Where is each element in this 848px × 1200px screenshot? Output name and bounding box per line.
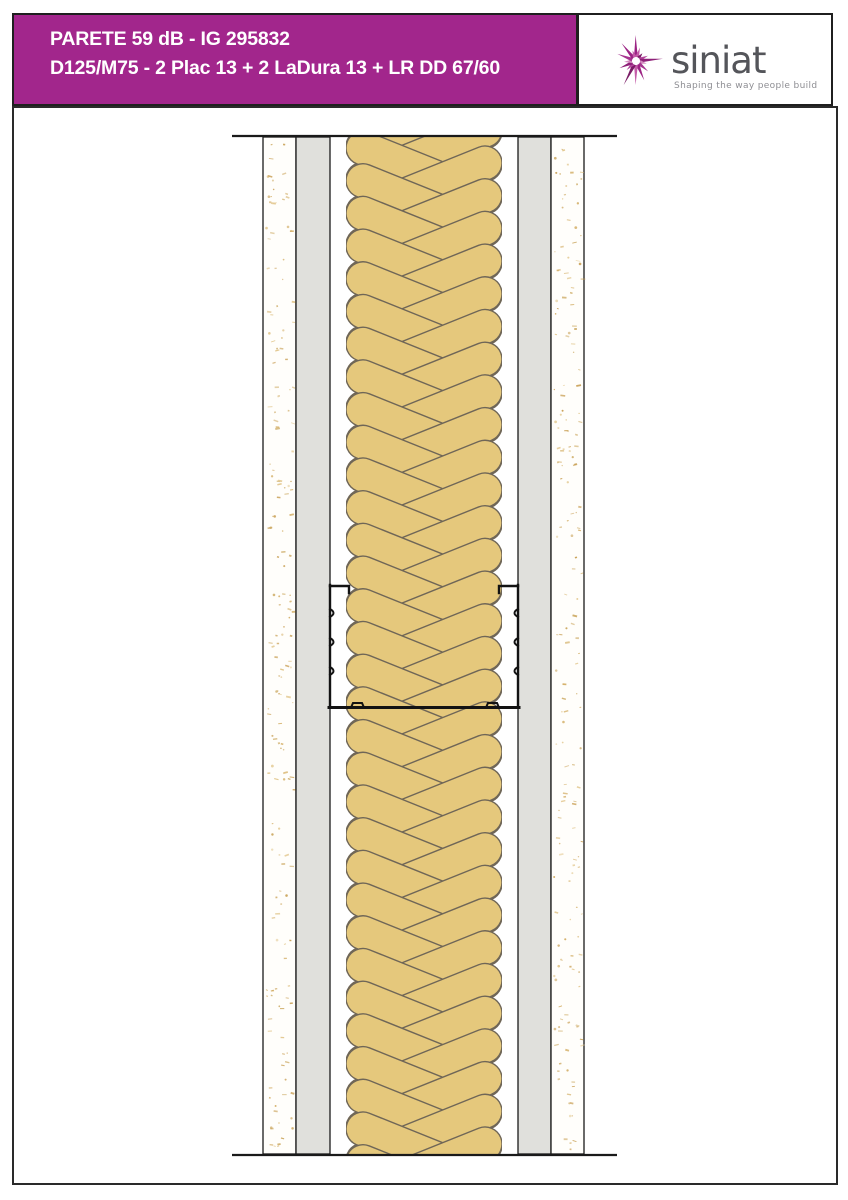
- mineral-wool-batt: [346, 33, 502, 1200]
- ladura-board-left: [296, 137, 330, 1154]
- ladura-board-right: [518, 137, 551, 1154]
- plasterboard-outer-right: [551, 137, 585, 1154]
- wall-section-drawing: [0, 0, 848, 1200]
- plasterboard-outer-left: [263, 137, 296, 1154]
